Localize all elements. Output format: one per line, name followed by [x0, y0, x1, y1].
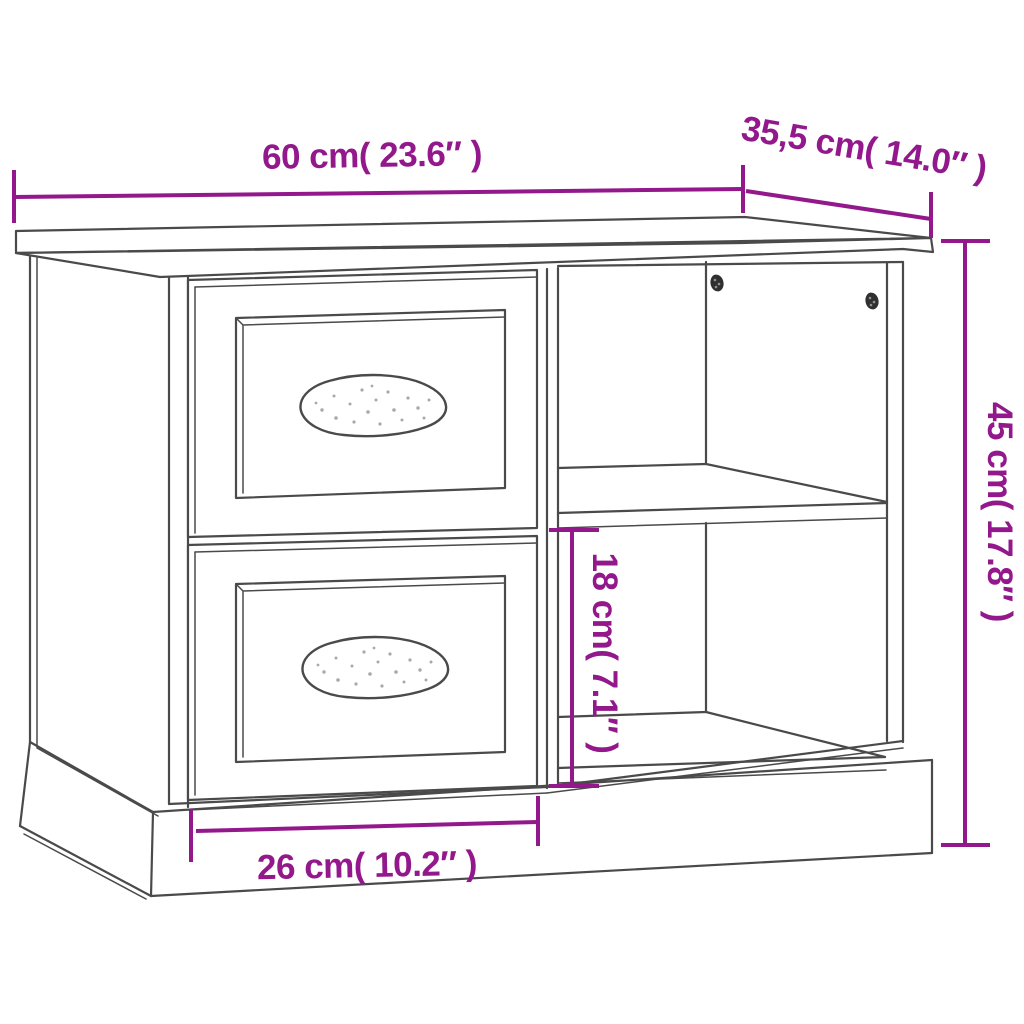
plinth-left-bottom-edge	[20, 826, 151, 896]
plinth-left-top-inner-edge	[37, 748, 158, 816]
body-bottom-inner-edge-right	[547, 748, 903, 793]
plinth-back-left-edge	[20, 742, 30, 826]
inner-height-dimension-label: 18 cm( 7.1″ )	[584, 553, 624, 754]
drawer-width-dimension-label: 26 cm( 10.2″ )	[257, 844, 478, 889]
plinth-left-top-edge	[30, 742, 153, 812]
drawer-bottom	[188, 536, 537, 800]
top-panel	[16, 217, 933, 277]
shelf-back-edge	[706, 464, 887, 502]
width-dimension-label: 60 cm( 23.6″ )	[262, 134, 483, 178]
shell-handle-top-icon	[300, 375, 446, 436]
compartment-top-edge	[558, 262, 903, 266]
lower-wall-bottom-edge	[558, 712, 706, 717]
shelf-front-strip	[558, 518, 887, 528]
shell-handle-bottom-icon	[302, 637, 448, 698]
depth-dimension-line	[746, 191, 931, 219]
back-panel-screw-right-icon	[864, 291, 880, 310]
drawer-top	[188, 270, 537, 537]
back-panel-screw-left-icon	[709, 273, 725, 292]
divider-wall-bottom-edge	[558, 464, 706, 468]
plinth-front-left-corner	[151, 812, 153, 896]
height-dimension-label: 45 cm( 17.8″ )	[979, 402, 1019, 622]
shelf-front-edge	[558, 503, 887, 513]
drawer-width-dimension-line	[196, 822, 538, 831]
furniture-dimension-diagram: 60 cm( 23.6″ ) 35,5 cm( 14.0″ ) 45 cm( 1…	[0, 0, 1024, 1024]
width-dimension-line	[14, 189, 743, 197]
plinth-left-bottom-inner-edge	[24, 834, 146, 899]
floor-back-edge	[706, 712, 885, 757]
